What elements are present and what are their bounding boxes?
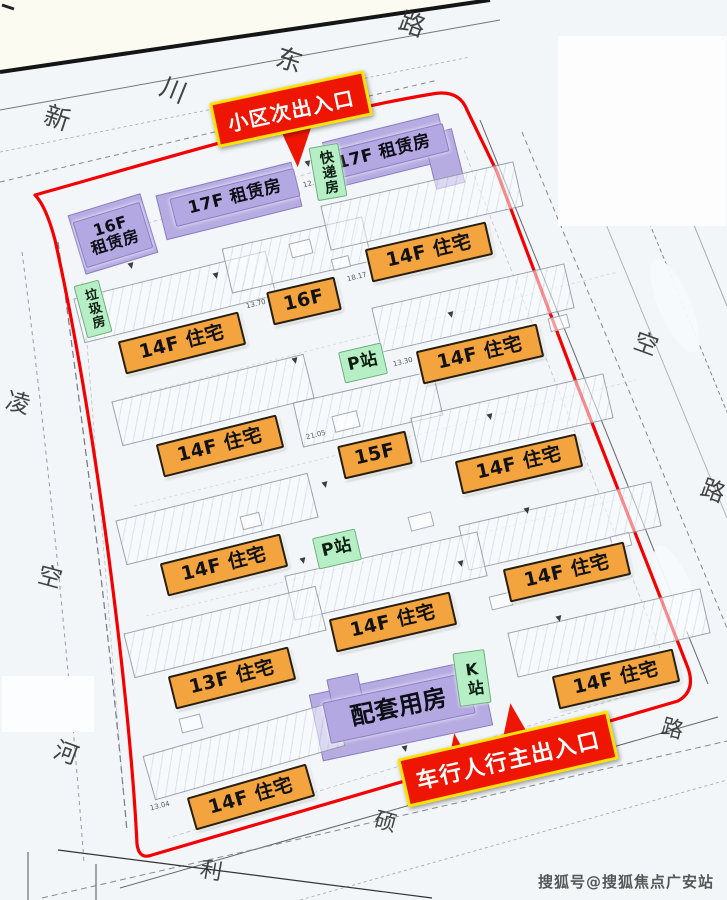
site-plan-map: 搜狐号@搜狐焦点广安站 ▼▼▼▼▼▼▼▼▼▼▼▼▼▼▼▼12.3513.7018… — [0, 0, 727, 900]
white-patch — [558, 36, 726, 226]
watermark-text: 搜狐号@搜狐焦点广安站 — [538, 871, 714, 892]
road-line — [58, 850, 432, 898]
white-patch — [2, 676, 94, 732]
road-name-char: 利 — [198, 859, 224, 884]
